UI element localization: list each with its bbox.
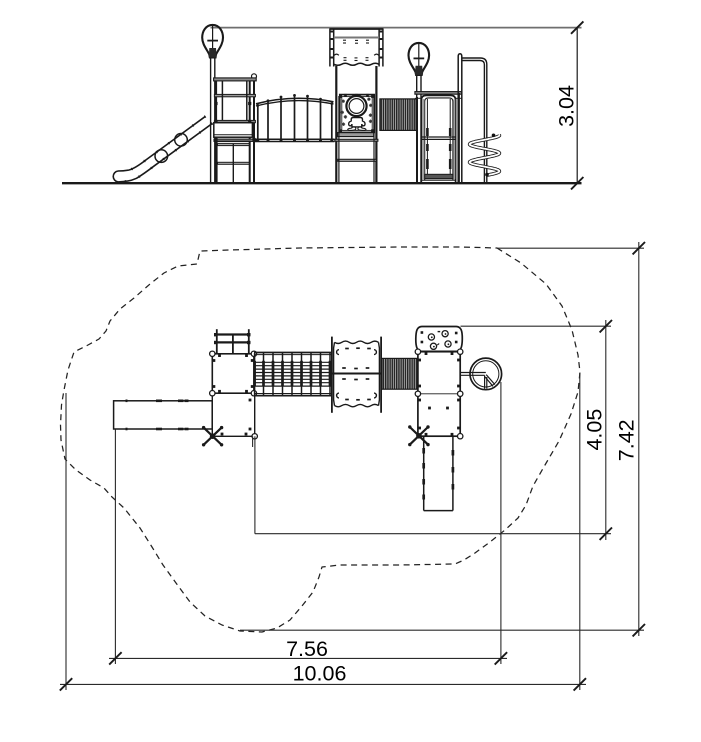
svg-text:10.06: 10.06 <box>293 662 347 686</box>
svg-text:7.42: 7.42 <box>614 419 638 461</box>
svg-text:7.56: 7.56 <box>286 637 328 661</box>
svg-text:3.04: 3.04 <box>555 85 579 127</box>
svg-text:4.05: 4.05 <box>582 409 606 451</box>
